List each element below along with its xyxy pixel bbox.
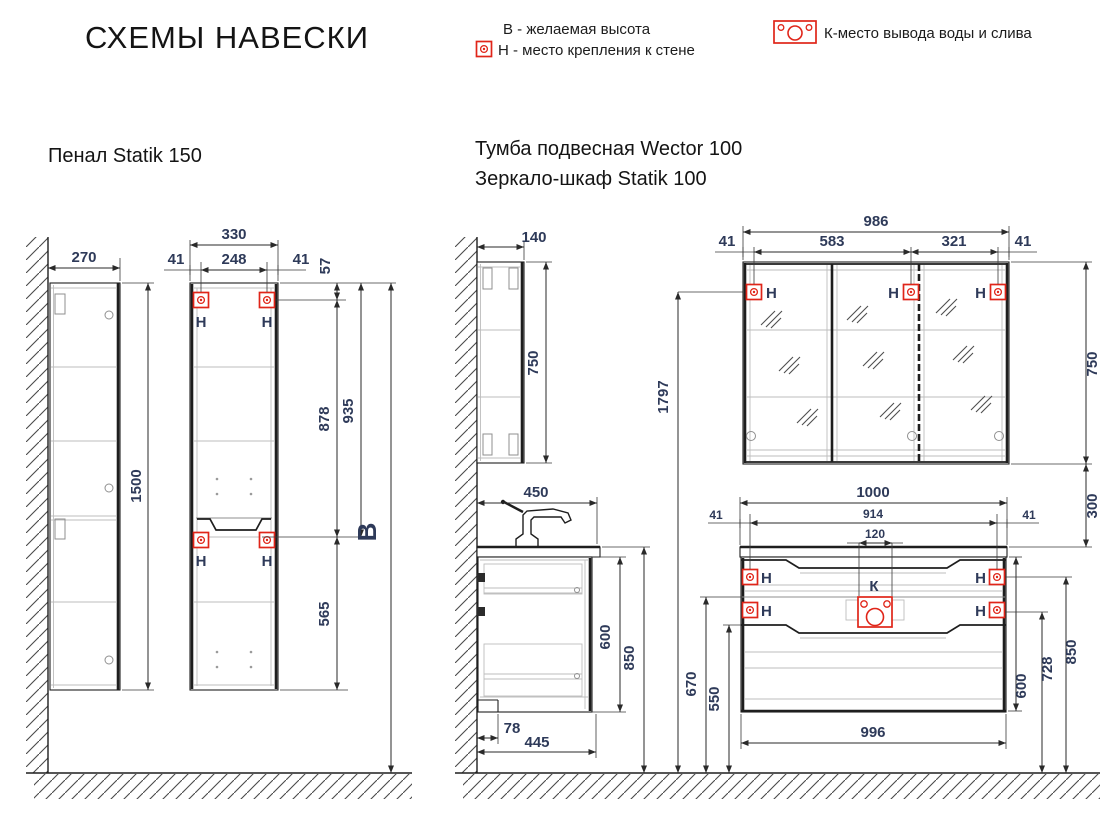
dim-vanity-body-height-side: 600 bbox=[597, 624, 614, 649]
dim-penal-lower-gap: 565 bbox=[316, 601, 333, 626]
dim-mirror-edge-right: 41 bbox=[1015, 233, 1032, 250]
dim-mirror-width: 986 bbox=[863, 213, 888, 230]
mount-label: Н bbox=[196, 314, 207, 331]
legend-height-label: В - желаемая высота bbox=[503, 21, 651, 38]
mirror-side-view bbox=[477, 262, 524, 463]
floor-hatch bbox=[34, 774, 412, 799]
wall-bracket bbox=[477, 607, 485, 616]
mount-point-icon bbox=[990, 570, 1005, 585]
mount-point-icon bbox=[260, 293, 275, 308]
dim-vanity-bottom-depth: 445 bbox=[524, 734, 549, 751]
dim-penal-top-gap: 935 bbox=[340, 398, 357, 423]
penal-scheme: Пенал Statik 150 bbox=[26, 145, 412, 799]
dim-vanity-edge-left: 41 bbox=[709, 508, 723, 522]
drain-point-mark bbox=[858, 597, 892, 627]
dim-vanity-left-up: 670 bbox=[683, 671, 700, 696]
drain-point-icon bbox=[774, 21, 816, 43]
drawing-canvas: СХЕМЫ НАВЕСКИ В - желаемая высота Н - ме… bbox=[0, 0, 1111, 826]
mount-label: Н bbox=[975, 285, 986, 302]
vanity-front-view: К Н Н Н Н bbox=[740, 547, 1007, 712]
mount-point-icon bbox=[743, 570, 758, 585]
penal-title: Пенал Statik 150 bbox=[48, 145, 202, 167]
mount-label: Н bbox=[196, 553, 207, 570]
dim-mirror-depth: 140 bbox=[521, 229, 546, 246]
mount-point-icon bbox=[194, 293, 209, 308]
dim-mirror-mount-height: 1797 bbox=[655, 380, 672, 413]
dim-mirror-span2: 321 bbox=[941, 233, 966, 250]
dim-penal-depth: 270 bbox=[71, 249, 96, 266]
dim-mirror-height-side: 750 bbox=[525, 350, 542, 375]
faucet bbox=[516, 509, 571, 547]
dim-vanity-plinth: 78 bbox=[504, 720, 521, 737]
mount-label: Н bbox=[888, 285, 899, 302]
wector-scheme: Тумба подвесная Wector 100 Зеркало-шкаф … bbox=[455, 138, 1101, 799]
mounting-schemes-drawing: СХЕМЫ НАВЕСКИ В - желаемая высота Н - ме… bbox=[0, 0, 1111, 826]
dim-gap: 300 bbox=[1084, 493, 1101, 518]
dim-penal-height: 1500 bbox=[128, 469, 145, 502]
mount-label: Н bbox=[262, 553, 273, 570]
mount-label: Н bbox=[761, 603, 772, 620]
mount-point-icon bbox=[904, 285, 919, 300]
mount-point-icon bbox=[991, 285, 1006, 300]
dim-vanity-mount-up: 850 bbox=[1063, 639, 1080, 664]
dim-mirror-edge-left: 41 bbox=[719, 233, 736, 250]
wall-hatch bbox=[26, 237, 48, 773]
mount-label: Н bbox=[766, 285, 777, 302]
dim-penal-edge-left: 41 bbox=[168, 251, 185, 268]
penal-side-view bbox=[50, 283, 120, 690]
dim-vanity-width: 1000 bbox=[856, 484, 889, 501]
wector-title-line2: Зеркало-шкаф Statik 100 bbox=[475, 168, 707, 190]
dim-vanity-edge-right: 41 bbox=[1022, 508, 1036, 522]
vanity-side-view bbox=[477, 500, 600, 712]
penal-front-view: Н Н Н Н bbox=[190, 283, 278, 690]
dim-penal-width: 330 bbox=[221, 226, 246, 243]
mount-label: Н bbox=[262, 314, 273, 331]
dim-vanity-side-height: 850 bbox=[621, 645, 638, 670]
dim-vanity-body-height: 600 bbox=[1013, 673, 1030, 698]
mirror-front-view: Н Н Н bbox=[743, 262, 1009, 464]
dim-mirror-height-right: 750 bbox=[1084, 351, 1101, 376]
wall-hatch bbox=[455, 237, 477, 773]
floor-hatch bbox=[463, 774, 1100, 799]
mount-point-icon bbox=[260, 533, 275, 548]
mount-label: Н bbox=[975, 570, 986, 587]
legend-drain-label: К-место вывода воды и слива bbox=[824, 25, 1032, 42]
mount-point-icon bbox=[990, 603, 1005, 618]
mount-label: Н bbox=[975, 603, 986, 620]
page-title: СХЕМЫ НАВЕСКИ bbox=[85, 20, 369, 55]
dim-penal-top-offset: 57 bbox=[317, 258, 334, 275]
dim-vanity-mount-low: 728 bbox=[1039, 656, 1056, 681]
desired-height-label: В bbox=[352, 523, 382, 542]
mount-point-icon bbox=[747, 285, 762, 300]
dim-penal-edge-right: 41 bbox=[293, 251, 310, 268]
dim-vanity-bottom-width: 996 bbox=[860, 724, 885, 741]
dim-vanity-drain-span: 120 bbox=[865, 527, 885, 541]
mount-point-icon bbox=[477, 42, 492, 57]
dim-vanity-left-low: 550 bbox=[706, 686, 723, 711]
wall-bracket bbox=[477, 573, 485, 582]
mount-label: Н bbox=[761, 570, 772, 587]
mount-point-icon bbox=[194, 533, 209, 548]
dim-vanity-mount-span: 914 bbox=[863, 507, 883, 521]
mount-point-icon bbox=[743, 603, 758, 618]
dim-vanity-depth: 450 bbox=[523, 484, 548, 501]
dim-penal-span: 248 bbox=[221, 251, 246, 268]
drain-label: К bbox=[869, 578, 879, 595]
legend: В - желаемая высота Н - место крепления … bbox=[477, 21, 1033, 59]
dim-mirror-span1: 583 bbox=[819, 233, 844, 250]
legend-mount-label: Н - место крепления к стене bbox=[498, 42, 695, 59]
wector-title-line1: Тумба подвесная Wector 100 bbox=[475, 138, 742, 160]
dim-penal-upper-gap: 878 bbox=[316, 406, 333, 431]
